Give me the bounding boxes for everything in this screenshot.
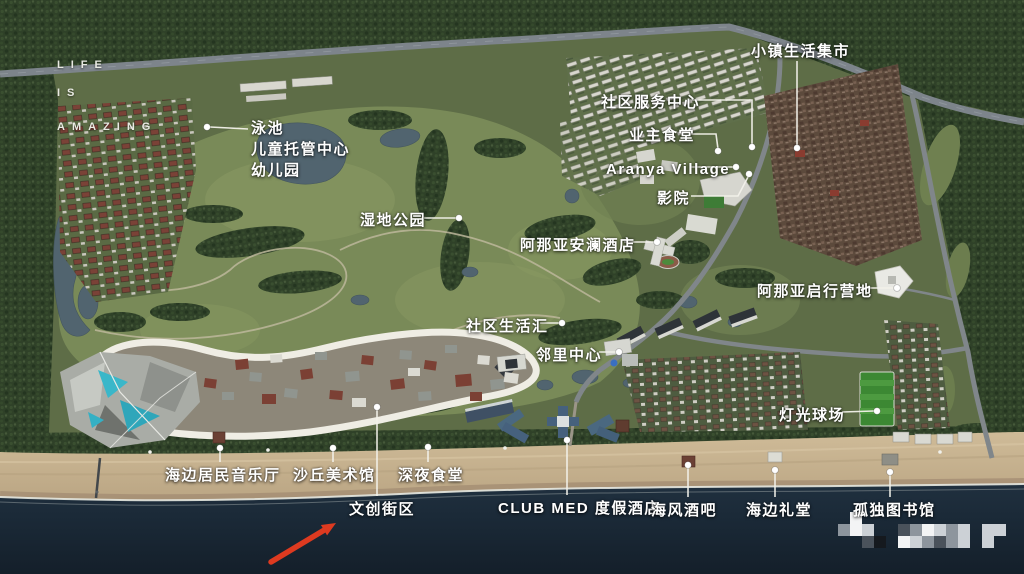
- watermark-cell: [922, 536, 934, 548]
- leader-line-pool-daycare-kindergarten: [210, 127, 248, 129]
- leader-dot-seaside-chapel: [772, 467, 779, 474]
- leader-dot-owners-canteen: [715, 148, 722, 155]
- watermark-cell: [922, 524, 934, 536]
- leader-dot-seaside-concert-hall: [217, 445, 224, 452]
- watermark-cell: [958, 524, 970, 536]
- annotation-overlay: [0, 0, 1024, 574]
- watermark-cell: [850, 512, 862, 524]
- watermark-cell: [982, 536, 994, 548]
- leader-dot-anlan-hotel: [654, 239, 661, 246]
- leader-dot-dune-art-museum: [330, 445, 337, 452]
- watermark-cell: [898, 536, 910, 548]
- watermark-cell: [862, 524, 874, 536]
- leader-dot-town-life-market: [794, 145, 801, 152]
- watermark-cell: [838, 524, 850, 536]
- leader-line-owners-canteen: [689, 134, 718, 149]
- leader-dot-neighborhood-center: [616, 349, 623, 356]
- leader-dot-community-life-hub: [559, 320, 566, 327]
- watermark-cell: [898, 524, 910, 536]
- watermark-cell: [850, 524, 862, 536]
- leader-dot-lonely-library: [887, 469, 894, 476]
- masterplan-map: LIFEISAMAZING泳池儿童托管中心幼儿园小镇生活集市社区服务中心业主食堂…: [0, 0, 1024, 574]
- leader-dot-creative-street: [374, 404, 381, 411]
- leader-dot-sea-breeze-bar: [685, 462, 692, 469]
- leader-dot-aranya-village: [733, 164, 740, 171]
- watermark-cell: [946, 536, 958, 548]
- watermark-cell: [946, 524, 958, 536]
- leader-dot-community-service-center: [749, 144, 756, 151]
- leader-dot-cinema: [746, 171, 753, 178]
- watermark-cell: [862, 536, 874, 548]
- watermark-cell: [910, 536, 922, 548]
- leader-dot-pool-daycare-kindergarten: [204, 124, 211, 131]
- watermark-cell: [958, 536, 970, 548]
- leader-dot-club-med-resort: [564, 437, 571, 444]
- watermark-cell: [874, 536, 886, 548]
- leader-dot-midnight-canteen: [425, 444, 432, 451]
- leader-line-cinema: [691, 177, 748, 196]
- leader-dot-wetland-park: [456, 215, 463, 222]
- leader-dot-floodlit-pitch: [874, 408, 881, 415]
- watermark-cell: [982, 524, 994, 536]
- leader-line-community-service-center: [690, 100, 752, 145]
- watermark-cell: [934, 536, 946, 548]
- watermark-cell: [910, 524, 922, 536]
- leader-dot-qixing-camp: [894, 285, 901, 292]
- red-arrow-shaft: [271, 528, 327, 562]
- watermark-cell: [994, 524, 1006, 536]
- leader-line-floodlit-pitch: [842, 411, 874, 412]
- watermark-cell: [934, 524, 946, 536]
- watermark-mosaic: [838, 512, 1006, 548]
